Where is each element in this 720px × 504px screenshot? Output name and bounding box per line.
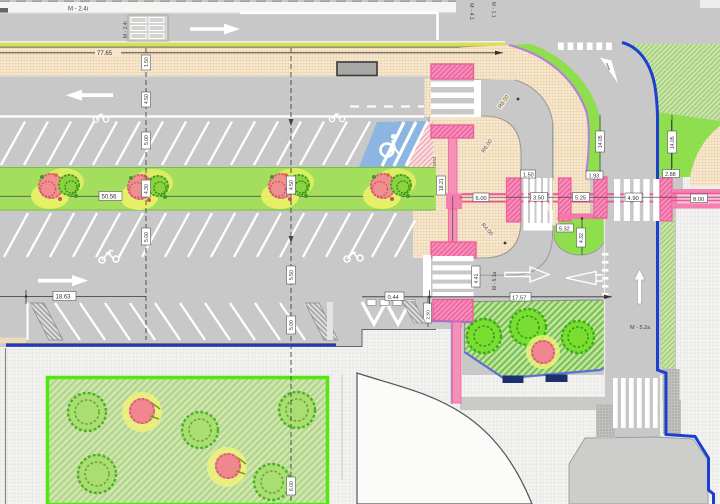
svg-text:M-5t: M-5t [432, 156, 437, 166]
svg-text:4.50: 4.50 [144, 94, 150, 104]
svg-text:18.21: 18.21 [439, 178, 445, 191]
svg-text:77.65: 77.65 [97, 51, 113, 57]
svg-text:17.57: 17.57 [512, 295, 527, 301]
svg-text:1.50: 1.50 [144, 57, 150, 67]
svg-text:3.50: 3.50 [533, 196, 544, 202]
svg-text:M - 2.4i: M - 2.4i [123, 21, 129, 38]
svg-text:M - 2.4i: M - 2.4i [68, 7, 88, 13]
svg-text:5.00: 5.00 [289, 320, 295, 330]
svg-text:5.25: 5.25 [575, 196, 586, 202]
svg-text:8.00: 8.00 [693, 197, 704, 203]
svg-text:1.50: 1.50 [523, 173, 534, 179]
svg-text:4.30: 4.30 [144, 184, 150, 194]
svg-text:4.32: 4.32 [579, 233, 585, 243]
svg-text:0.44: 0.44 [388, 295, 400, 301]
svg-text:M - 5.1a: M - 5.1a [492, 271, 498, 290]
svg-text:5.50: 5.50 [289, 270, 295, 280]
svg-text:4.41: 4.41 [474, 274, 480, 284]
svg-text:14.05: 14.05 [670, 136, 676, 149]
svg-text:4.50: 4.50 [289, 180, 295, 190]
svg-text:5.32: 5.32 [559, 227, 570, 233]
svg-text:6.00: 6.00 [289, 481, 295, 491]
svg-text:2.88: 2.88 [665, 172, 676, 178]
svg-text:1.93: 1.93 [589, 174, 600, 180]
svg-text:14.05: 14.05 [598, 135, 604, 148]
svg-text:M - 4.1: M - 4.1 [468, 3, 474, 20]
svg-text:6.00: 6.00 [476, 196, 487, 202]
svg-text:2.50: 2.50 [426, 310, 432, 320]
svg-text:4.90: 4.90 [628, 196, 639, 202]
svg-text:50.56: 50.56 [102, 195, 118, 201]
svg-text:M - 1.1: M - 1.1 [490, 2, 496, 18]
svg-text:M - 5.2a: M - 5.2a [630, 325, 651, 331]
svg-text:18.63: 18.63 [56, 295, 72, 301]
svg-text:5.00: 5.00 [144, 135, 150, 145]
svg-text:5.00: 5.00 [144, 232, 150, 242]
